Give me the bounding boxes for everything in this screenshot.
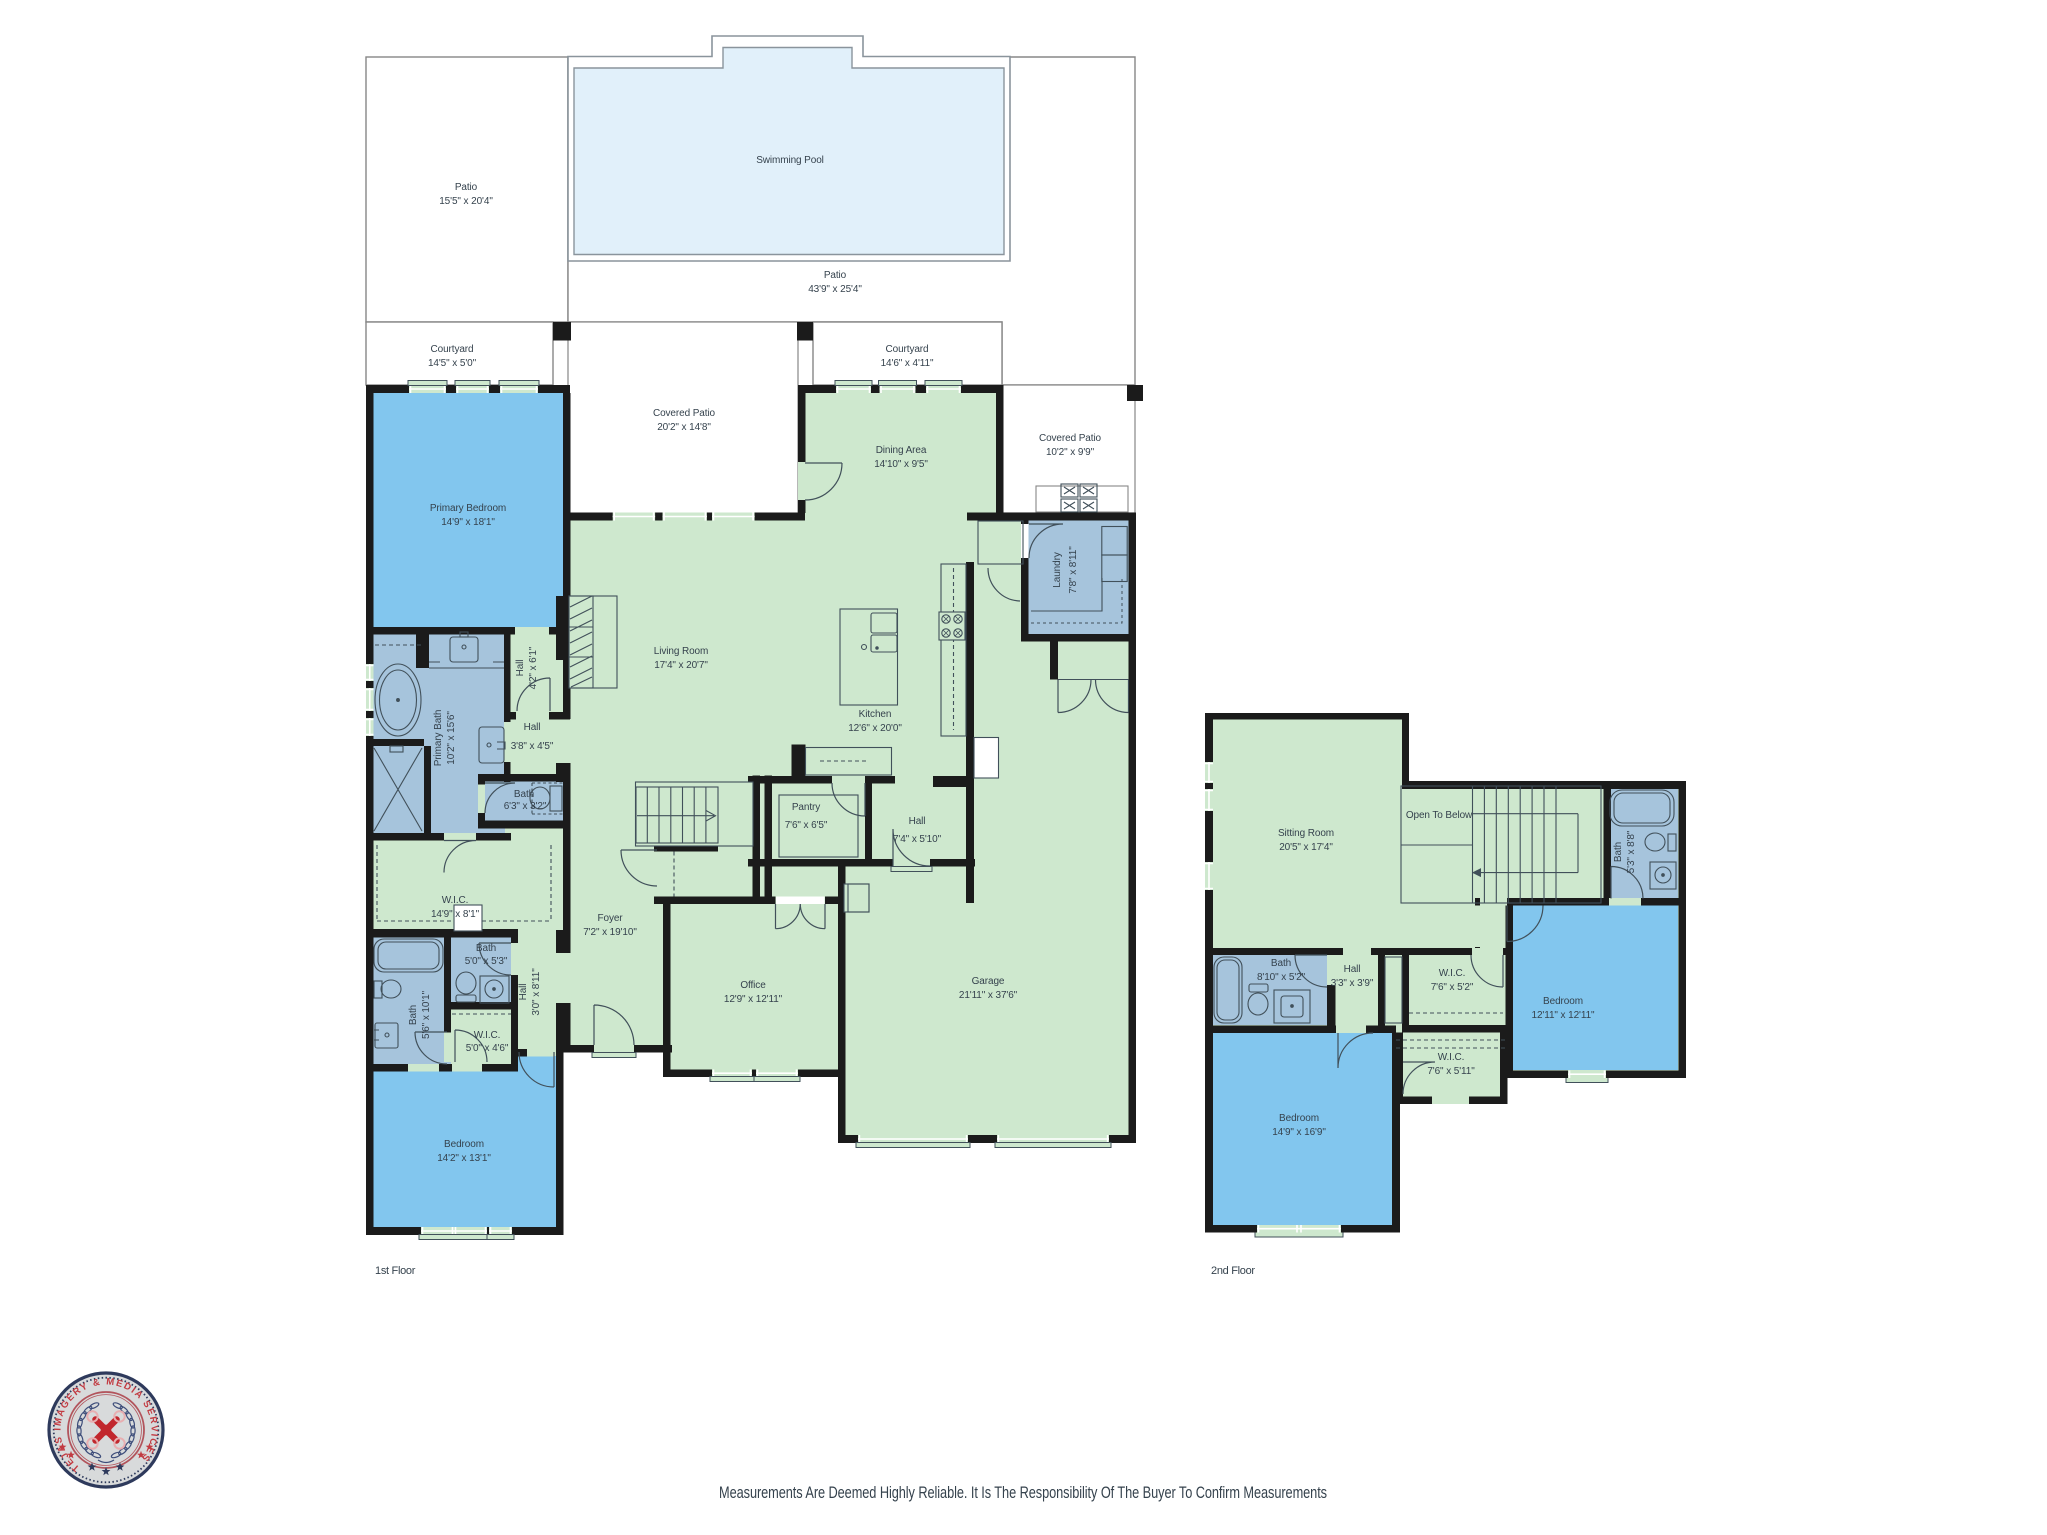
svg-text:W.I.C.: W.I.C. [442, 895, 469, 906]
svg-text:W.I.C.: W.I.C. [474, 1030, 501, 1041]
svg-text:Office: Office [740, 980, 766, 991]
svg-text:Bath: Bath [514, 789, 534, 800]
svg-text:Hall: Hall [515, 660, 526, 677]
svg-text:14'9" x 18'1": 14'9" x 18'1" [441, 517, 495, 528]
svg-text:Hall: Hall [524, 722, 541, 733]
svg-text:10'2" x 15'6": 10'2" x 15'6" [446, 711, 457, 765]
svg-text:Covered Patio: Covered Patio [653, 408, 716, 419]
svg-text:7'2" x 19'10": 7'2" x 19'10" [583, 927, 637, 938]
svg-text:Primary Bedroom: Primary Bedroom [430, 503, 506, 514]
svg-text:Pantry: Pantry [792, 802, 820, 813]
svg-text:43'9" x 25'4": 43'9" x 25'4" [808, 284, 862, 295]
svg-text:7'6" x 5'11": 7'6" x 5'11" [1427, 1066, 1475, 1077]
svg-text:Hall: Hall [518, 984, 529, 1001]
svg-text:Bath: Bath [1271, 958, 1291, 969]
svg-text:20'2" x 14'8": 20'2" x 14'8" [657, 422, 711, 433]
svg-text:5'0" x 4'6": 5'0" x 4'6" [466, 1043, 509, 1054]
svg-text:7'8" x 8'11": 7'8" x 8'11" [1068, 546, 1079, 594]
svg-text:3'0" x 8'11": 3'0" x 8'11" [531, 968, 542, 1016]
svg-text:17'4" x 20'7": 17'4" x 20'7" [654, 660, 708, 671]
svg-text:Swimming Pool: Swimming Pool [756, 155, 824, 166]
svg-text:8'10" x 5'2": 8'10" x 5'2" [1257, 972, 1306, 983]
svg-text:15'5" x 20'4": 15'5" x 20'4" [439, 196, 493, 207]
svg-text:Courtyard: Courtyard [430, 344, 473, 355]
svg-text:Dining Area: Dining Area [876, 445, 927, 456]
svg-text:Bath: Bath [1613, 842, 1624, 862]
svg-text:Foyer: Foyer [597, 913, 623, 924]
svg-text:W.I.C.: W.I.C. [1438, 1052, 1465, 1063]
svg-text:Covered Patio: Covered Patio [1039, 433, 1102, 444]
svg-text:Bedroom: Bedroom [1543, 996, 1583, 1007]
svg-text:7'4" x 5'10": 7'4" x 5'10" [893, 834, 942, 845]
svg-text:3'8" x 4'5": 3'8" x 4'5" [511, 741, 554, 752]
svg-text:Patio: Patio [455, 182, 478, 193]
svg-text:W.I.C.: W.I.C. [1439, 968, 1466, 979]
svg-text:14'5" x 5'0": 14'5" x 5'0" [428, 358, 477, 369]
svg-text:14'9" x 16'9": 14'9" x 16'9" [1272, 1127, 1326, 1138]
svg-text:12'9" x 12'11": 12'9" x 12'11" [724, 994, 783, 1005]
svg-text:Living Room: Living Room [654, 646, 708, 657]
svg-text:12'11" x 12'11": 12'11" x 12'11" [1532, 1010, 1596, 1021]
svg-text:Hall: Hall [909, 816, 926, 827]
svg-text:Bedroom: Bedroom [1279, 1113, 1319, 1124]
svg-text:5'0" x 5'3": 5'0" x 5'3" [465, 956, 508, 967]
svg-text:4'2" x 6'1": 4'2" x 6'1" [528, 646, 539, 689]
svg-text:7'6" x 6'5": 7'6" x 6'5" [785, 820, 828, 831]
svg-text:Hall: Hall [1344, 964, 1361, 975]
svg-text:Measurements Are Deemed Highly: Measurements Are Deemed Highly Reliable.… [719, 1483, 1327, 1502]
svg-text:5'6" x 10'1": 5'6" x 10'1" [421, 990, 432, 1039]
svg-text:14'10" x 9'5": 14'10" x 9'5" [874, 459, 928, 470]
svg-text:2nd Floor: 2nd Floor [1211, 1265, 1255, 1277]
svg-text:Kitchen: Kitchen [859, 709, 892, 720]
svg-text:10'2" x 9'9": 10'2" x 9'9" [1046, 447, 1095, 458]
svg-text:Patio: Patio [824, 270, 847, 281]
svg-text:3'3" x 3'9": 3'3" x 3'9" [1331, 978, 1374, 989]
svg-text:1st Floor: 1st Floor [375, 1265, 416, 1277]
svg-text:21'11" x 37'6": 21'11" x 37'6" [959, 990, 1018, 1001]
svg-text:14'6" x 4'11": 14'6" x 4'11" [881, 358, 934, 369]
svg-text:Garage: Garage [972, 976, 1005, 987]
svg-text:Courtyard: Courtyard [885, 344, 928, 355]
svg-text:Bath: Bath [408, 1005, 419, 1025]
svg-text:14'9" x 8'1": 14'9" x 8'1" [431, 909, 480, 920]
svg-text:5'3" x 8'8": 5'3" x 8'8" [1626, 830, 1637, 873]
svg-text:6'3" x 3'2": 6'3" x 3'2" [504, 801, 547, 812]
svg-text:Bedroom: Bedroom [444, 1139, 484, 1150]
svg-text:Laundry: Laundry [1052, 552, 1063, 588]
svg-text:20'5" x 17'4": 20'5" x 17'4" [1279, 842, 1333, 853]
svg-text:14'2" x 13'1": 14'2" x 13'1" [437, 1153, 491, 1164]
svg-text:Bath: Bath [476, 943, 496, 954]
svg-text:Open To Below: Open To Below [1406, 810, 1473, 821]
svg-text:12'6" x 20'0": 12'6" x 20'0" [848, 723, 902, 734]
svg-text:7'6" x 5'2": 7'6" x 5'2" [1431, 982, 1474, 993]
svg-text:Primary Bath: Primary Bath [433, 710, 444, 767]
svg-text:Sitting Room: Sitting Room [1278, 828, 1334, 839]
